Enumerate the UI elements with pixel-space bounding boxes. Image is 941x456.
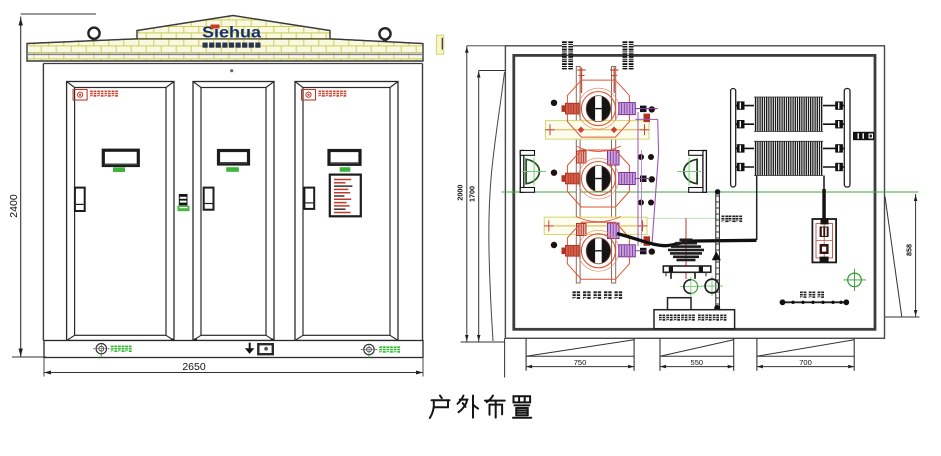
svg-text:2650: 2650 <box>182 361 206 373</box>
svg-text:1700: 1700 <box>467 186 476 202</box>
svg-text:858: 858 <box>905 244 914 256</box>
svg-text:2000: 2000 <box>455 185 464 201</box>
svg-text:700: 700 <box>799 358 812 367</box>
svg-text:2400: 2400 <box>8 194 20 218</box>
svg-text:750: 750 <box>574 358 587 367</box>
svg-text:550: 550 <box>691 358 704 367</box>
